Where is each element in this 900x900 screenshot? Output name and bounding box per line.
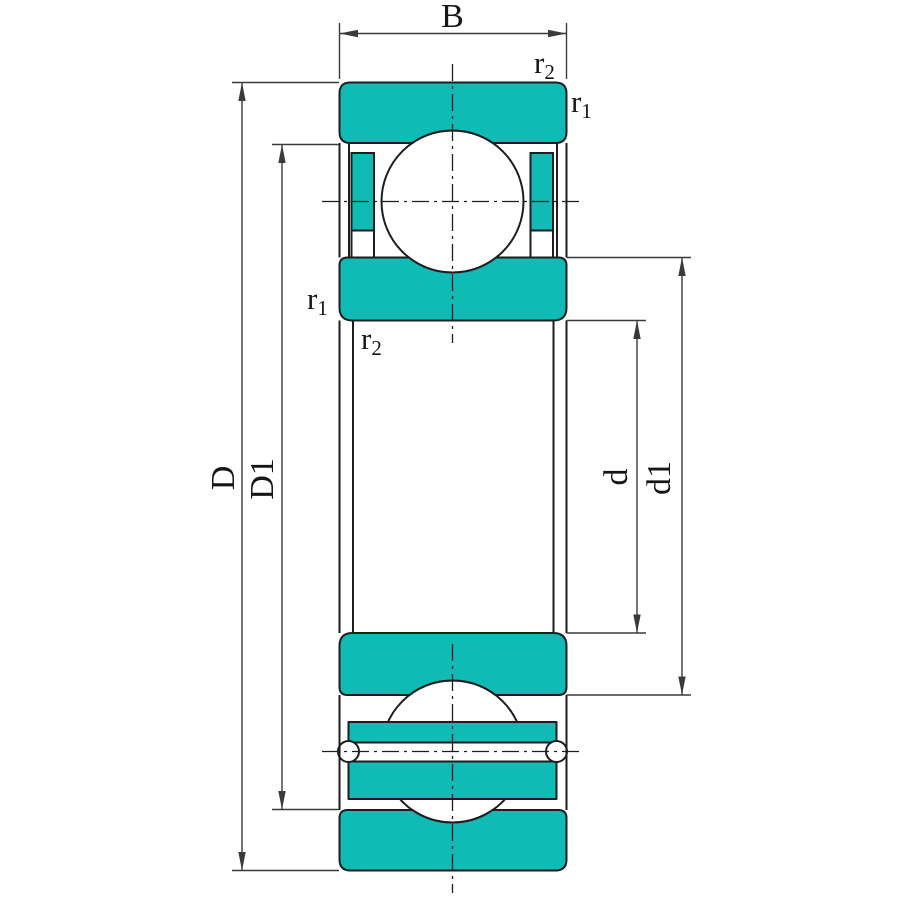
dimension-D1: D1 [244,145,339,810]
dimension-d: d [567,321,647,634]
arrowhead-d1-top [678,258,685,277]
arrowhead-B-left [340,30,359,37]
drawing-canvas: B D D1 d d1 r2 r1 r1 r2 [0,0,900,900]
label-r2-outer-top: r2 [534,45,555,84]
arrowhead-D-bottom [238,852,245,871]
label-inner-race-diameter-d1: d1 [641,461,678,495]
arrowhead-d1-bottom [678,677,685,696]
cage-section-right [531,153,554,231]
cage-section-left [352,153,375,231]
arrowhead-D1-bottom [278,791,285,810]
arrowhead-D1-top [278,145,285,164]
arrowhead-B-right [548,30,567,37]
bore-silhouette [340,321,567,634]
bearing-cross-section-drawing: B D D1 d d1 r2 r1 r1 r2 [0,0,900,900]
label-outer-race-diameter-D1: D1 [244,458,281,500]
label-bore-diameter-d: d [598,469,635,486]
label-r1-inner-face: r1 [307,281,328,320]
label-outer-diameter-D: D [205,466,242,491]
arrowhead-d-bottom [633,615,640,634]
label-r1-outer-face: r1 [571,84,592,123]
arrowhead-d-top [633,321,640,340]
arrowhead-D-top [238,83,245,102]
label-width-B: B [441,0,464,35]
label-r2-inner-bore: r2 [361,321,382,360]
